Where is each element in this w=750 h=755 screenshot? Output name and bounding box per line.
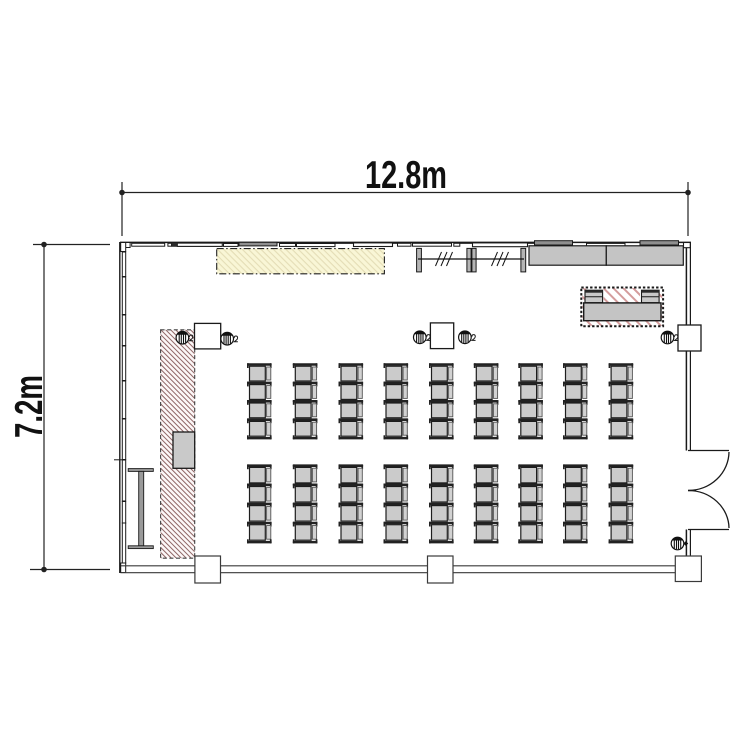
svg-text:12.8m: 12.8m: [365, 154, 447, 197]
